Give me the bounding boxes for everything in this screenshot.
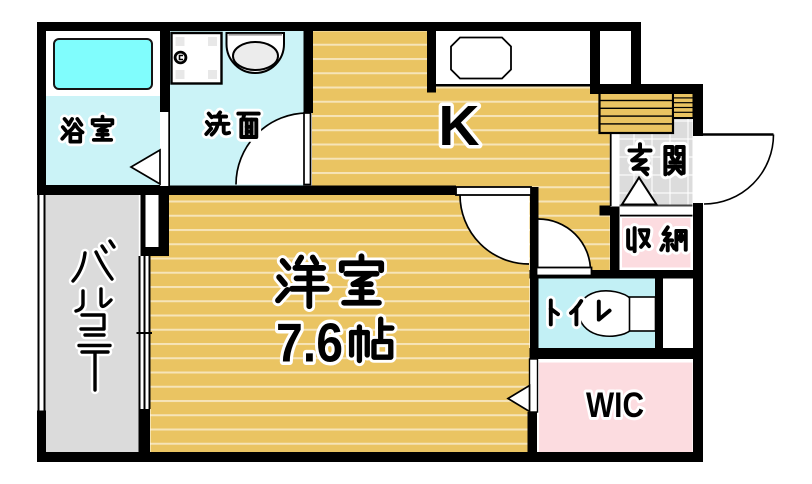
svg-text:7.6: 7.6 (276, 312, 343, 374)
svg-text:WIC: WIC (586, 386, 644, 425)
svg-text:K: K (438, 94, 479, 158)
